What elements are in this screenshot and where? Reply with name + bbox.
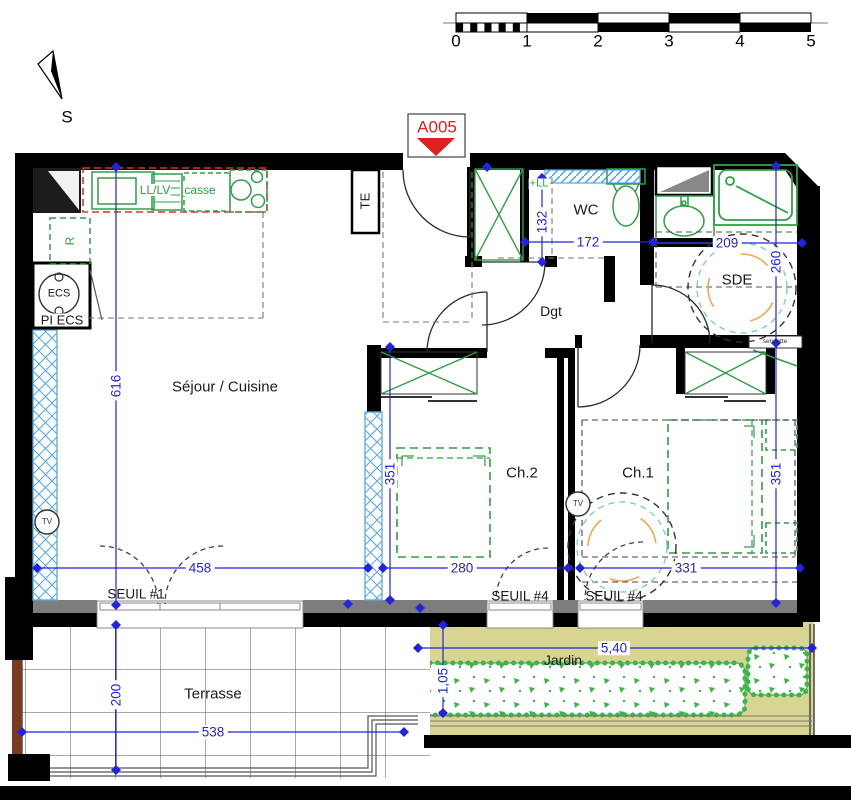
- dim-wc-width: 172: [574, 235, 603, 249]
- dim-sde-width: 209: [713, 236, 742, 250]
- closet-entry: [475, 169, 523, 260]
- water-heater-label: ECS: [48, 289, 71, 300]
- dim-terrasse-height: 200: [109, 681, 123, 710]
- site-boundary-bottom: [0, 786, 851, 800]
- dim-sde-height: 260: [769, 248, 783, 277]
- scale-tick-1: 1: [522, 33, 531, 50]
- room-label-wc: WC: [574, 203, 599, 218]
- tv-outlet-label-1: TV: [42, 518, 52, 526]
- sill-seuil-4b: [578, 601, 643, 628]
- north-arrow-icon: [38, 51, 62, 99]
- bed-ch2: [397, 448, 490, 557]
- dim-ch1-height: 351: [769, 460, 783, 489]
- dim-sejour-width: 458: [186, 561, 215, 575]
- dashed-zones: [88, 172, 797, 582]
- washbasin: [656, 196, 714, 243]
- room-label-ch1: Ch.1: [622, 466, 654, 481]
- fridge-label: R: [64, 236, 76, 247]
- ch1-door: [578, 345, 640, 407]
- washer-slot-label: +LL: [529, 179, 550, 190]
- windows: [33, 170, 640, 600]
- scale-tick-4: 4: [735, 33, 744, 50]
- window-wc-north: [545, 170, 640, 183]
- closet-ch2: [381, 352, 477, 401]
- scale-tick-5: 5: [806, 33, 815, 50]
- dim-jardin-depth: 1,05: [436, 665, 450, 697]
- sde-door: [652, 285, 710, 343]
- window-sejour-west: [33, 330, 57, 600]
- room-label-ch2: Ch.2: [506, 466, 538, 481]
- scale-tick-0: 0: [451, 33, 460, 50]
- furniture: [397, 420, 797, 557]
- threshold-label-seuil4b: SEUIL #4: [585, 589, 642, 603]
- dim-washer-width: 132: [535, 208, 549, 237]
- dim-jardin-width: 5,40: [598, 641, 630, 655]
- scale-bar: [443, 13, 828, 32]
- compass-south-label: S: [61, 109, 72, 126]
- room-label-sejour: Séjour / Cuisine: [172, 380, 278, 395]
- shower: [714, 165, 797, 225]
- walls: [15, 153, 820, 627]
- threshold-label-seuil1: SEUIL #1: [107, 587, 164, 601]
- sill-seuil-4a: [487, 601, 553, 628]
- duct-shaft-sde: [656, 166, 712, 195]
- tv-outlet-label-2: TV: [573, 500, 583, 508]
- dim-ch1-width: 331: [672, 561, 701, 575]
- threshold-label-seuil4a: SEUIL #4: [491, 589, 548, 603]
- apartment-id-label: A005: [417, 119, 457, 136]
- hedge-short: [748, 648, 807, 695]
- dim-ch2-width: 280: [448, 561, 477, 575]
- duct-shaft-northwest: [33, 168, 81, 213]
- jardin-area: [418, 618, 814, 738]
- wc-door: [482, 262, 545, 325]
- electrical-panel-label: TE: [359, 193, 372, 210]
- turning-circles: [568, 234, 796, 601]
- nightstand-1: [766, 420, 797, 450]
- room-label-terrasse: Terrasse: [184, 687, 242, 702]
- water-heater-closet-label: PI ECS: [39, 314, 86, 327]
- closet-ch1: [685, 352, 766, 401]
- hedge-long: [421, 663, 745, 715]
- dim-terrasse-width: 538: [199, 725, 228, 739]
- terrasse-wood-edge: [12, 656, 22, 758]
- scale-tick-2: 2: [593, 33, 602, 50]
- towel-rail-label: serviette: [763, 339, 788, 346]
- dim-sejour-height: 616: [109, 372, 123, 401]
- floor-plan-page: 0 1 2 3 4 5 S A005 TE LL/LV casse R ECS …: [0, 0, 851, 800]
- room-label-dgt: Dgt: [540, 304, 562, 318]
- room-label-sde: SDE: [722, 273, 753, 288]
- sill-seuil-1: [97, 601, 303, 628]
- pot-drawer-label: casse: [183, 184, 216, 196]
- nightstand-2: [766, 523, 797, 553]
- dim-ch2-height: 351: [383, 460, 397, 489]
- room-label-jardin: Jardin: [544, 653, 582, 667]
- ch1-zone: [582, 420, 797, 582]
- washer-dishwasher-label: LL/LV: [139, 184, 171, 196]
- kitchen-zone: [88, 212, 263, 318]
- entrance-door: [403, 170, 470, 237]
- scale-tick-3: 3: [664, 33, 673, 50]
- site-boundary-right: [424, 735, 851, 748]
